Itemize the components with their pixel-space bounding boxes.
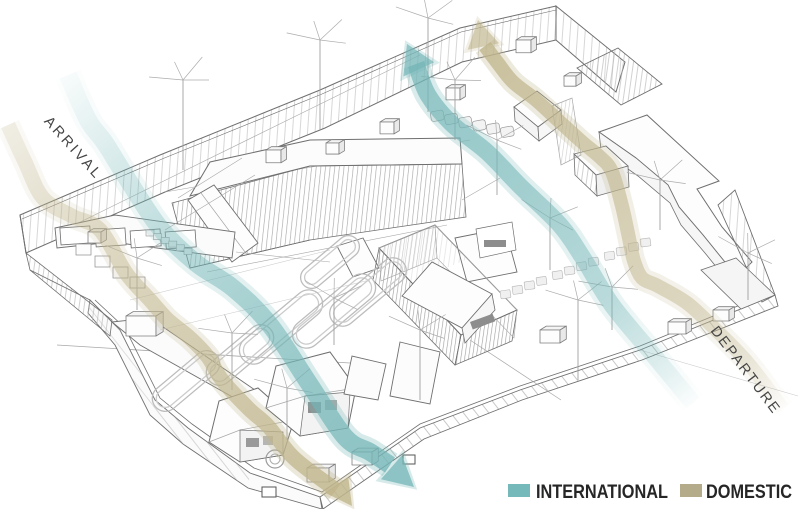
svg-text:INTERNATIONAL: INTERNATIONAL [536,482,668,503]
svg-text:DOMESTIC: DOMESTIC [706,482,792,503]
